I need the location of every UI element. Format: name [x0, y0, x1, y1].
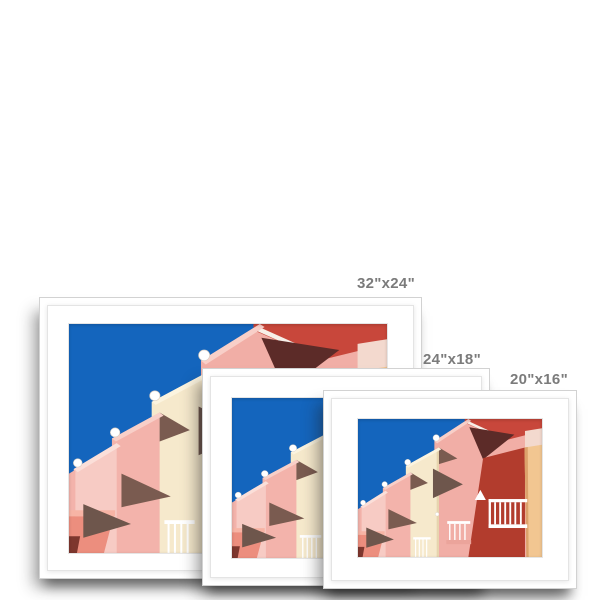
framed-photo-20x16 [357, 418, 543, 558]
size-label-20x16: 20"x16" [510, 371, 568, 388]
size-label-24x18: 24"x18" [423, 351, 481, 368]
size-label-32x24: 32"x24" [357, 275, 415, 292]
framed-print-size-comparison-mockup: 32"x24" 24"x18" 20"x16" [0, 0, 600, 600]
frame-20x16 [323, 390, 577, 589]
photo-artwork [358, 419, 542, 557]
